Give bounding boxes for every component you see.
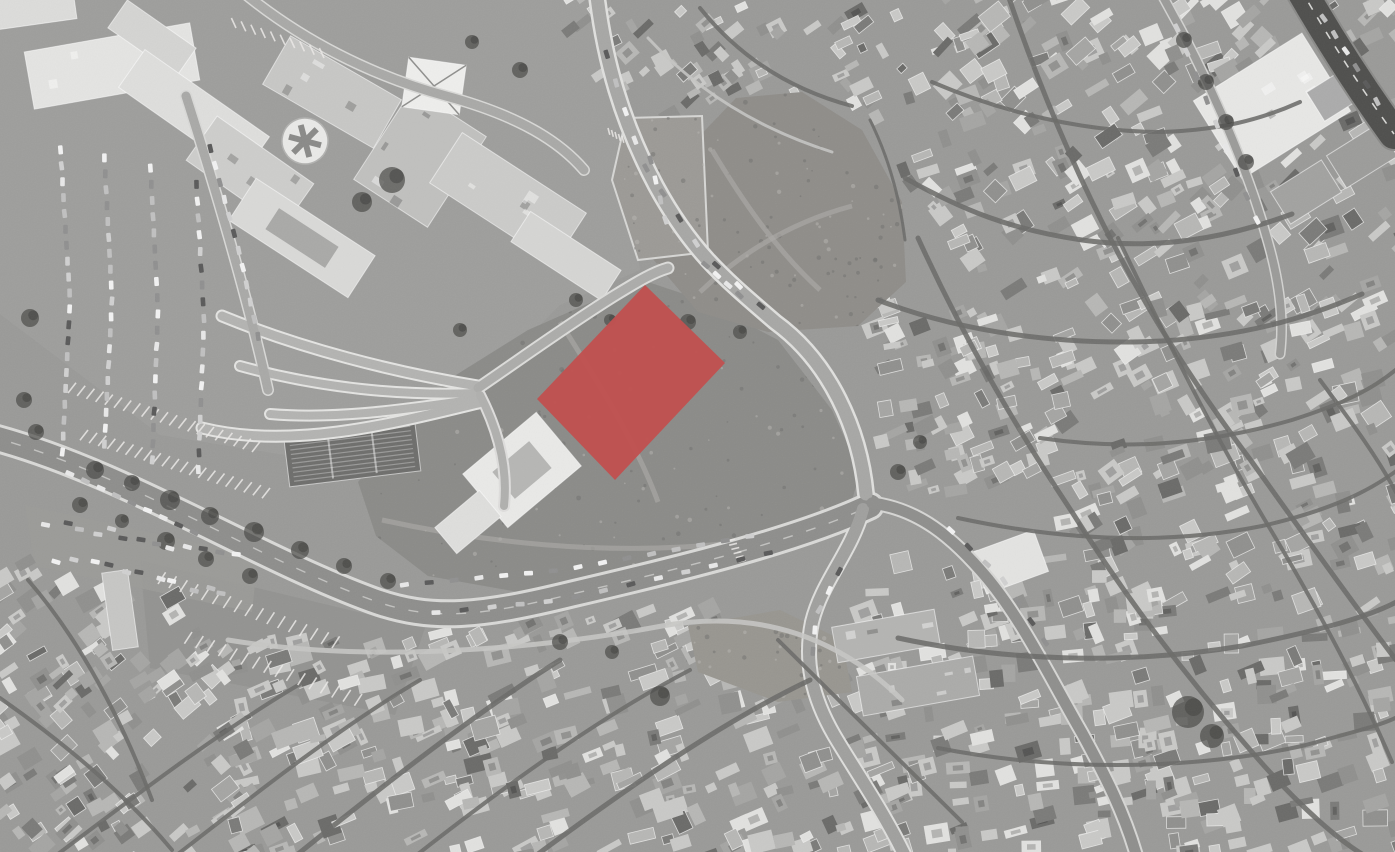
photo-grain-overlay bbox=[0, 0, 1395, 852]
aerial-map-image bbox=[0, 0, 1395, 852]
aerial-photo-canvas bbox=[0, 0, 1395, 852]
